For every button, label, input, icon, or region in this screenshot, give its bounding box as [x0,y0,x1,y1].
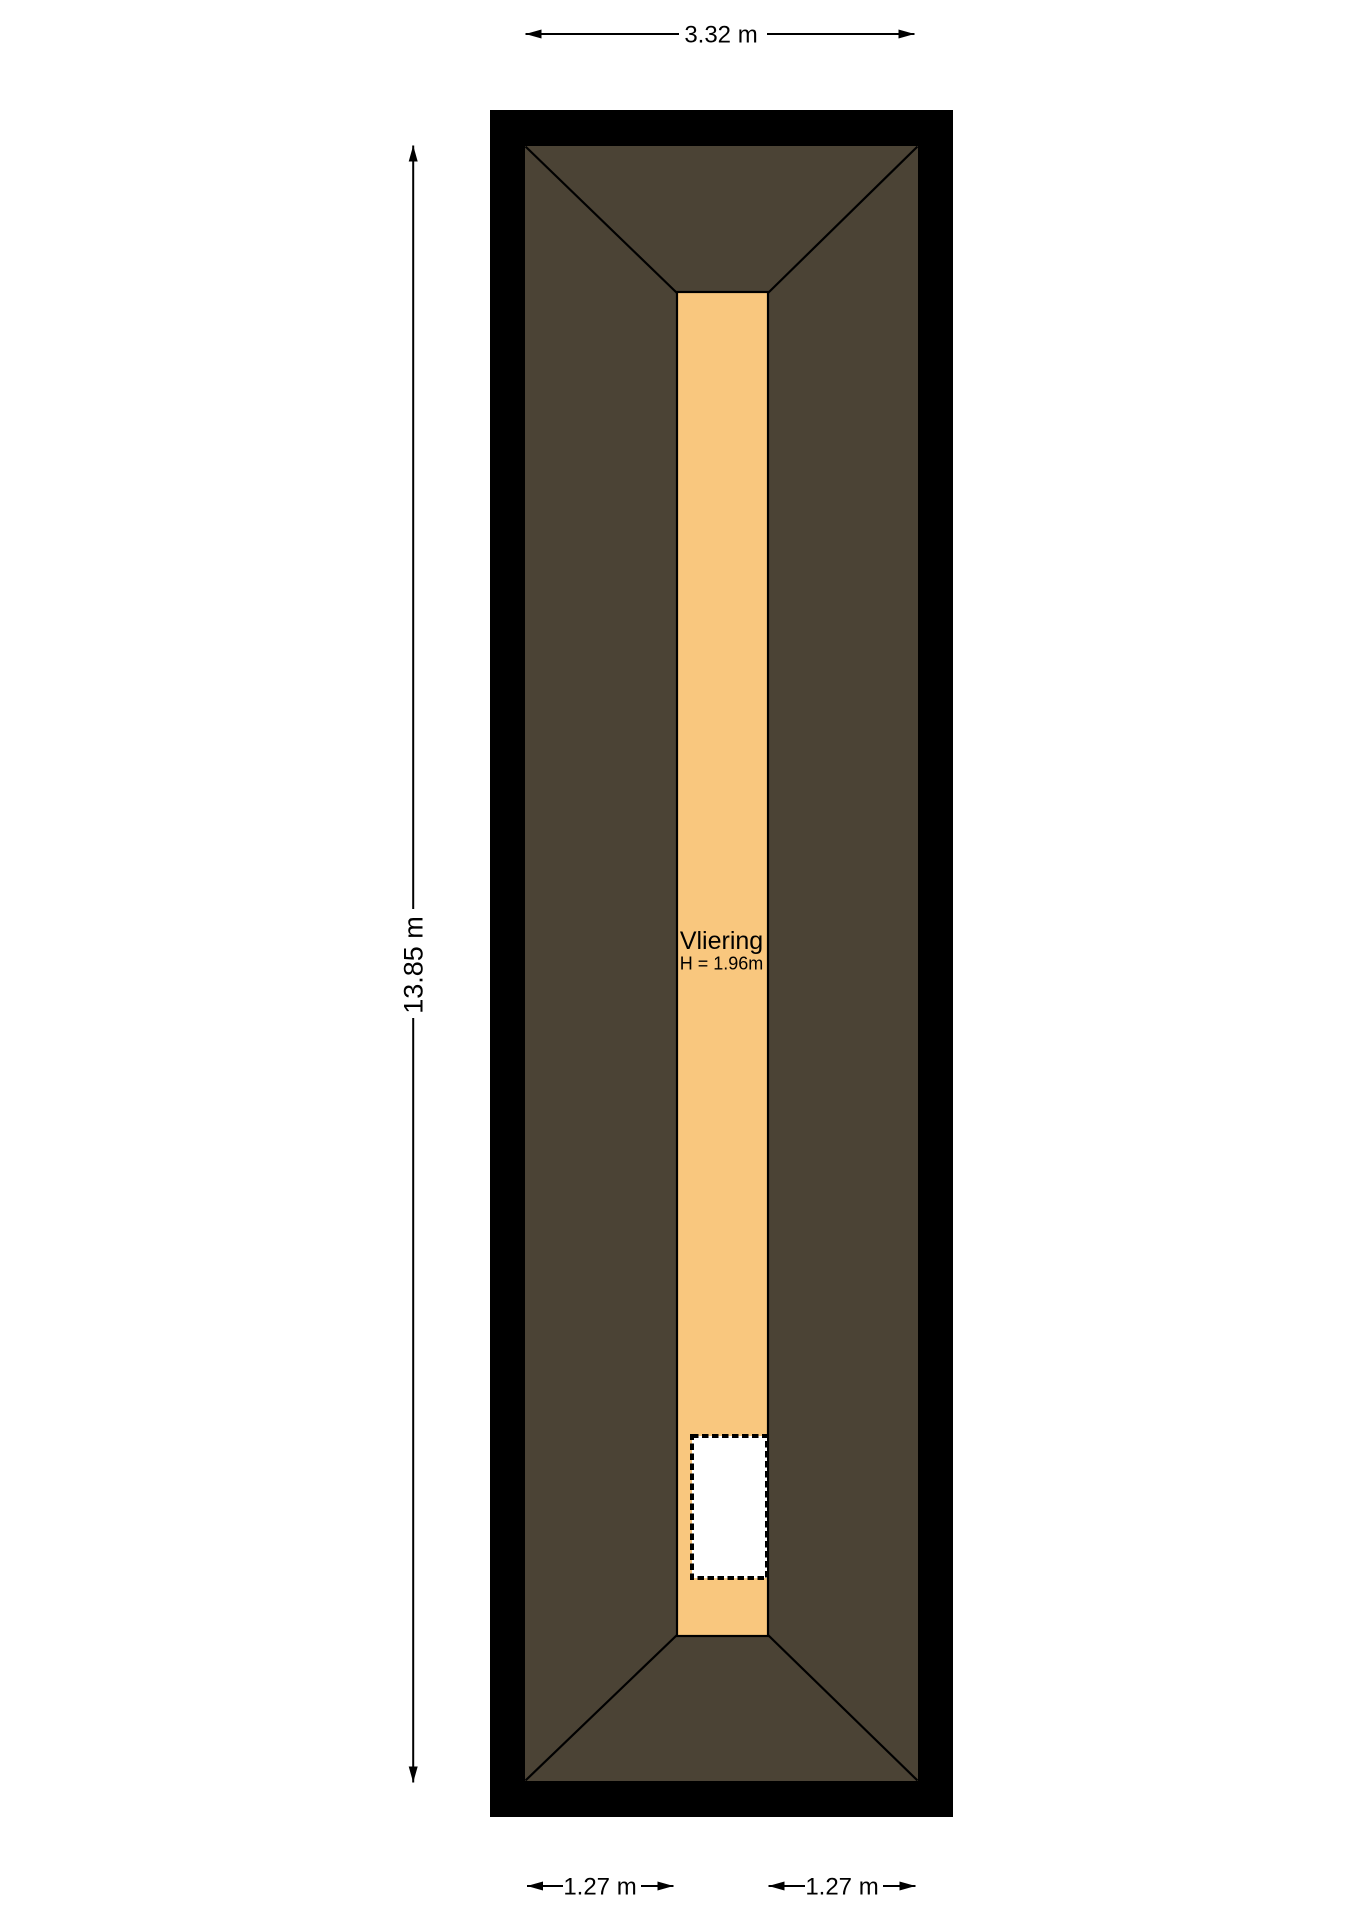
svg-text:3.32 m: 3.32 m [684,22,757,49]
svg-text:1.27 m: 1.27 m [563,1874,636,1901]
svg-text:13.85 m: 13.85 m [399,916,429,1014]
svg-text:H = 1.96m: H = 1.96m [680,954,764,974]
svg-text:1.27 m: 1.27 m [805,1874,878,1901]
svg-text:Vliering: Vliering [680,927,763,955]
